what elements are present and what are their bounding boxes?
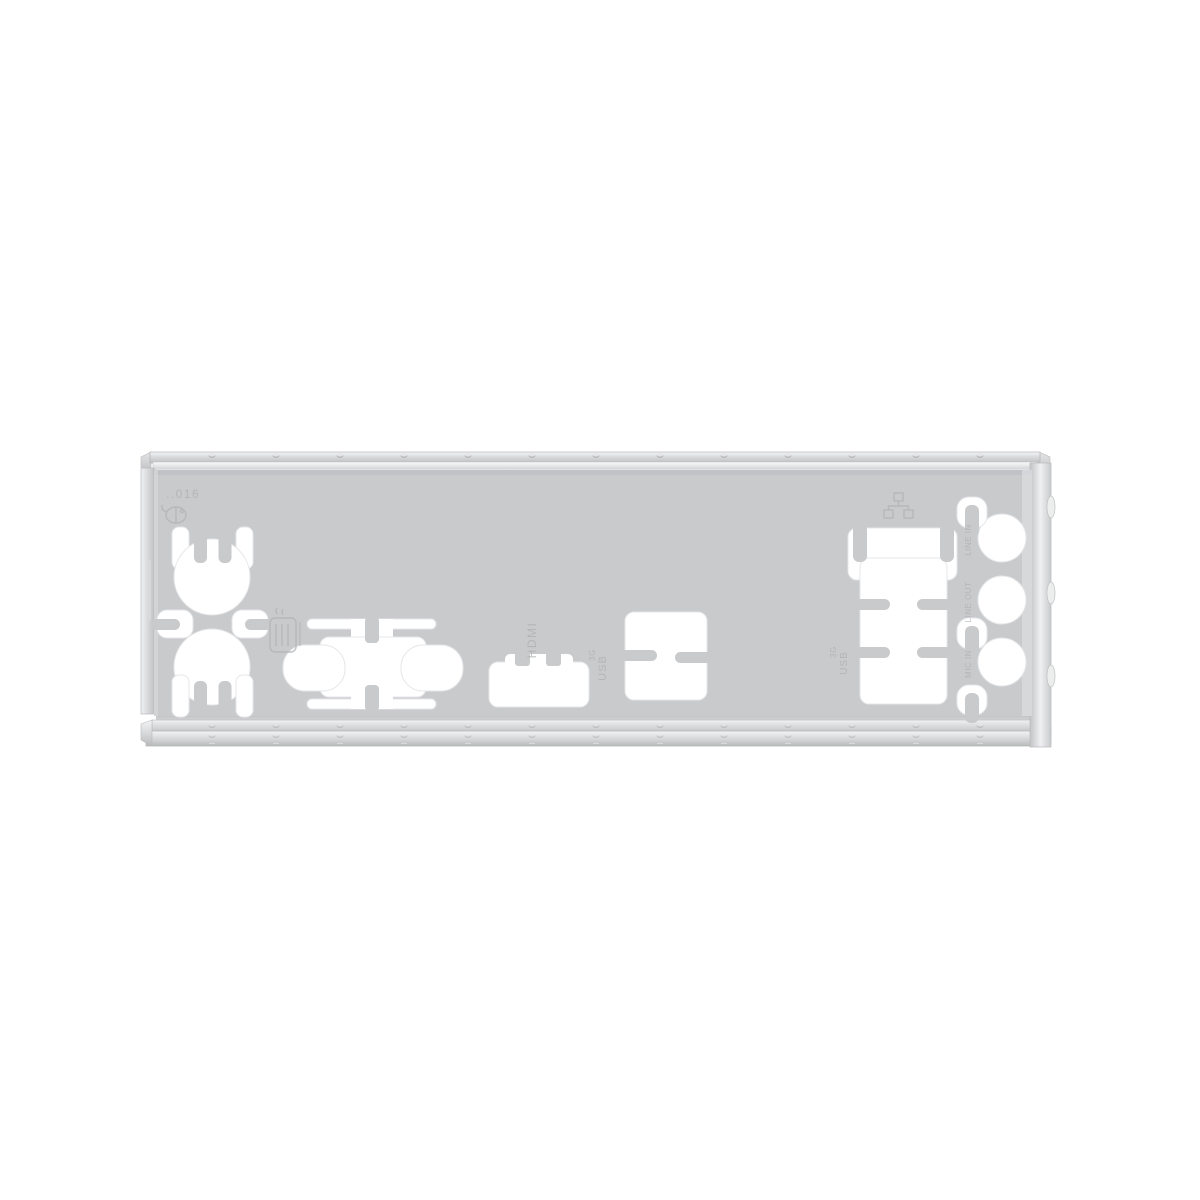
ps2-keyboard-finger-right — [219, 681, 232, 713]
lanusb-finger2-left — [854, 647, 890, 658]
hdmi-label: HDMI — [525, 622, 539, 659]
right-fold-bump1 — [1047, 496, 1055, 518]
top-flange-dimples — [160, 454, 1032, 463]
usb-center-label: USB — [597, 655, 609, 681]
right-fold-bump2 — [1047, 582, 1055, 604]
ps2-keyboard-slot-left — [172, 675, 189, 717]
dual-usb-cutout — [618, 612, 714, 700]
ps2-mouse-finger-left — [194, 531, 207, 563]
ps2-keyboard-cutout — [172, 629, 253, 717]
usb-finger-left — [618, 650, 657, 661]
ps2-keyboard-slot-right — [236, 675, 253, 717]
face-left-highlight — [154, 470, 158, 716]
dvi-finger-top — [365, 617, 379, 643]
left-fold-highlight — [147, 560, 151, 620]
usb-right-label: USB — [839, 651, 850, 675]
top-flange-bar2 — [153, 462, 1037, 470]
bottom-flange-dimples1 — [160, 722, 1032, 731]
lan-usb-body — [860, 558, 947, 704]
ps2-mouse-hole — [174, 539, 250, 615]
right-fold-bump3 — [1047, 665, 1055, 687]
face-top-shade — [154, 470, 1032, 475]
hdmi-notch-right — [546, 650, 561, 666]
lan-hook-left — [853, 524, 867, 562]
usb-center-gen-label: 3G — [588, 649, 597, 661]
bottom-flange-dimples2 — [158, 735, 1036, 744]
ps2-mouse-finger-right — [219, 531, 232, 563]
ps2-keyboard-finger-left — [194, 681, 207, 713]
lanusb-finger2-right — [917, 647, 953, 658]
audio-middle-label: LINE OUT — [964, 582, 973, 623]
bottom-flange — [141, 713, 1051, 746]
audio-tab-tongue3 — [965, 693, 979, 723]
lanusb-finger1-left — [854, 599, 890, 610]
lanusb-finger1-right — [917, 599, 953, 610]
audio-top-label: LINE IN — [964, 524, 973, 556]
clip-left-tongue — [151, 619, 180, 630]
ps2-mouse-cutout — [172, 527, 253, 615]
bottom-flange-left-tab — [141, 720, 152, 746]
usb-finger-right — [675, 652, 714, 663]
usb-right-gen-label: 3G — [829, 646, 838, 658]
lan-usb-cutout — [848, 524, 957, 704]
mold-number-label: ..016 — [166, 487, 200, 501]
audio-jack-bottom — [978, 638, 1026, 686]
audio-jack-middle — [978, 576, 1026, 624]
product-photo-canvas: ..016 HDMI USB 3G USB 3G LINE IN LINE OU… — [0, 0, 1200, 1200]
dvi-right-cap — [401, 645, 463, 691]
io-shield: ..016 HDMI USB 3G USB 3G LINE IN LINE OU… — [0, 0, 1200, 1200]
audio-bottom-label: MIC IN — [964, 650, 973, 678]
dvi-finger-bottom — [365, 685, 379, 711]
left-fold — [141, 468, 154, 714]
lan-hook-right — [940, 524, 954, 562]
right-fold — [1030, 463, 1055, 747]
